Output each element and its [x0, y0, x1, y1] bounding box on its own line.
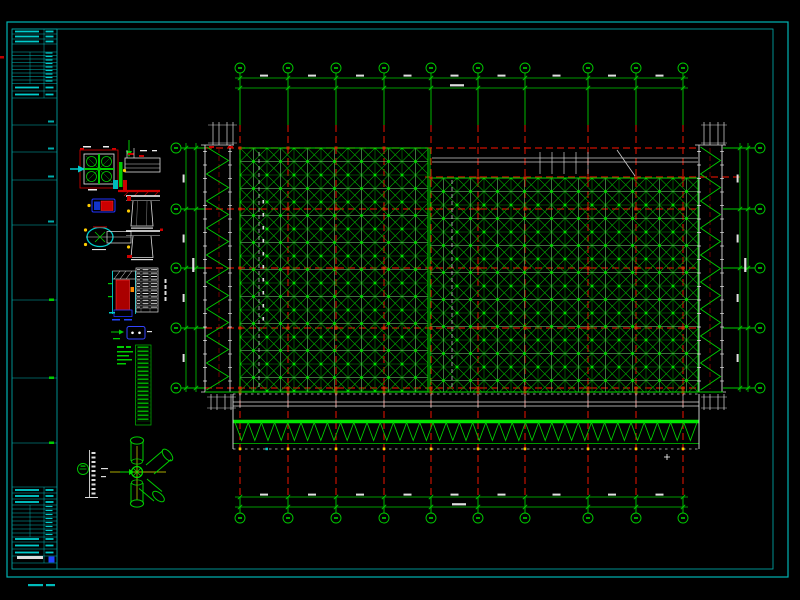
space-frame-panel-2 [430, 178, 698, 392]
cad-drawing-canvas[interactable] [0, 0, 800, 600]
upper-strip-detail [430, 148, 698, 178]
bearing-plan-detail [87, 199, 115, 212]
misc-symbols [111, 327, 152, 340]
bottom-truss [205, 392, 723, 450]
bearing-side-detail [84, 227, 131, 250]
ball-joint-detail [101, 437, 175, 507]
cad-drawing-viewport[interactable] [0, 0, 800, 600]
material-schedule [136, 345, 152, 425]
detail-label [78, 450, 99, 498]
corner-marks-top-right [701, 122, 727, 145]
space-frame-panel-1 [240, 148, 428, 392]
notes-text [117, 346, 133, 365]
space-frame-panels [240, 148, 698, 392]
support-section-b [126, 231, 160, 260]
support-section-a [126, 196, 160, 229]
axis-note-left [165, 279, 167, 301]
spec-table [136, 268, 158, 312]
corner-marks-bottom-left [207, 394, 236, 410]
anchor-bolt-detail [113, 140, 160, 196]
node-plan-detail [70, 146, 118, 191]
corner-marks-top-left [208, 122, 237, 148]
corner-marks-bottom-right [701, 394, 727, 410]
title-block [12, 29, 57, 569]
bearing-elevation-detail [108, 271, 136, 321]
